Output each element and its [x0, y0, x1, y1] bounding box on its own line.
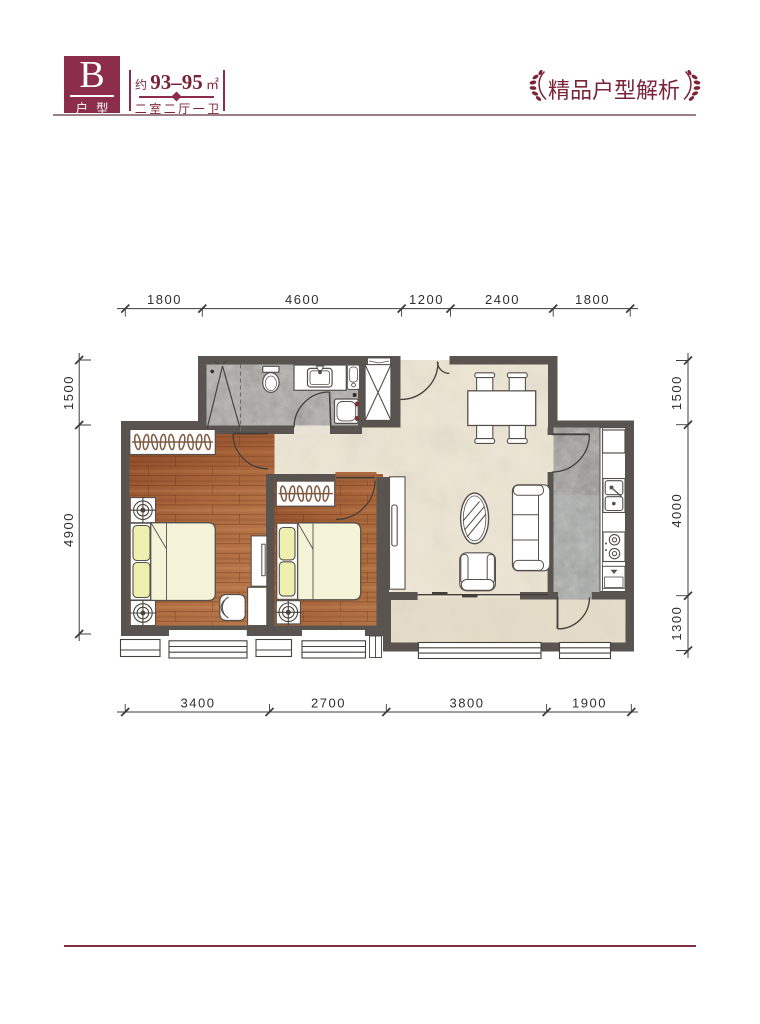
svg-text:3800: 3800	[450, 696, 485, 711]
svg-text:1200: 1200	[409, 292, 444, 307]
svg-text:1500: 1500	[669, 375, 684, 410]
svg-text:1900: 1900	[572, 696, 607, 711]
svg-text:1300: 1300	[669, 606, 684, 641]
svg-text:2700: 2700	[311, 696, 346, 711]
svg-text:3400: 3400	[181, 696, 216, 711]
svg-text:4000: 4000	[669, 493, 684, 528]
svg-text:2400: 2400	[485, 292, 520, 307]
svg-text:4600: 4600	[285, 292, 320, 307]
svg-text:1800: 1800	[147, 292, 182, 307]
svg-text:1800: 1800	[575, 292, 610, 307]
svg-text:4900: 4900	[61, 512, 76, 547]
svg-text:1500: 1500	[61, 375, 76, 410]
